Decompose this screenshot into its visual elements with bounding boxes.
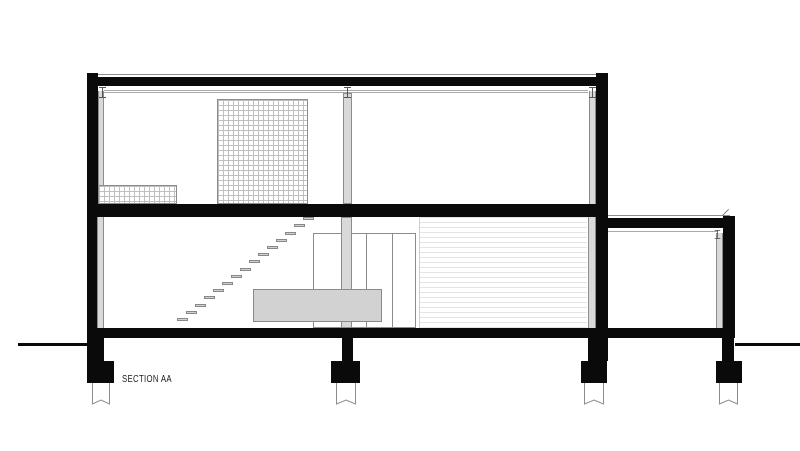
foundation-pile bbox=[336, 383, 356, 409]
section-drawing: SECTION AA bbox=[0, 0, 800, 451]
annex-roof-slab bbox=[600, 218, 723, 228]
foundation-stem bbox=[342, 338, 353, 361]
stair-tread bbox=[186, 311, 197, 314]
foundation-stem bbox=[588, 338, 601, 361]
beam-connector-icon bbox=[99, 87, 106, 98]
stair-tread bbox=[240, 268, 251, 271]
annex-right-wall bbox=[723, 216, 735, 338]
stair-tread bbox=[204, 296, 215, 299]
ground-line-right bbox=[735, 343, 800, 346]
foundation-footing bbox=[716, 361, 742, 383]
foundation-pile bbox=[584, 383, 604, 409]
mid-floor-slab bbox=[87, 204, 608, 217]
window-grid-panel bbox=[217, 99, 308, 204]
annex-parapet-line bbox=[608, 215, 730, 216]
foundation-pile bbox=[719, 383, 738, 409]
beam-connector-icon bbox=[344, 87, 351, 98]
foundation-footing bbox=[581, 361, 607, 383]
beam-connector-icon bbox=[715, 230, 721, 239]
section-label: SECTION AA bbox=[122, 374, 192, 388]
beam-connector-icon bbox=[589, 87, 596, 98]
stair-tread bbox=[231, 275, 242, 278]
foundation-footing bbox=[331, 361, 360, 383]
ground-line-left bbox=[18, 343, 87, 346]
low-grid-railing bbox=[98, 185, 177, 204]
lower-right-wall-lining bbox=[588, 217, 596, 328]
annex-wall-lining bbox=[716, 233, 723, 328]
cabinet-divider bbox=[392, 234, 393, 327]
stair-tread bbox=[195, 304, 206, 307]
upper-column bbox=[343, 93, 352, 204]
lower-left-wall-lining bbox=[97, 217, 104, 328]
stair-tread bbox=[177, 318, 188, 321]
right-wall bbox=[596, 73, 608, 361]
stair-tread bbox=[258, 253, 269, 256]
stair-tread bbox=[276, 239, 287, 242]
upper-right-wall-lining bbox=[589, 91, 596, 204]
foundation-pile bbox=[92, 383, 110, 409]
stair-tread bbox=[285, 232, 296, 235]
stair-tread bbox=[303, 217, 314, 220]
stair-tread bbox=[267, 246, 278, 249]
roof-slab bbox=[96, 77, 600, 86]
foundation-stem bbox=[722, 338, 734, 361]
louvered-wall bbox=[419, 217, 587, 328]
ground-floor-slab bbox=[87, 328, 735, 338]
stair-tread bbox=[249, 260, 260, 263]
foundation-stem bbox=[87, 338, 104, 361]
annex-ceiling-line bbox=[608, 231, 718, 233]
stair-tread bbox=[222, 282, 233, 285]
furniture-block bbox=[253, 289, 382, 322]
roof-parapet-line bbox=[87, 74, 608, 75]
foundation-footing bbox=[87, 361, 114, 383]
stair-tread bbox=[294, 224, 305, 227]
stair-tread bbox=[213, 289, 224, 292]
